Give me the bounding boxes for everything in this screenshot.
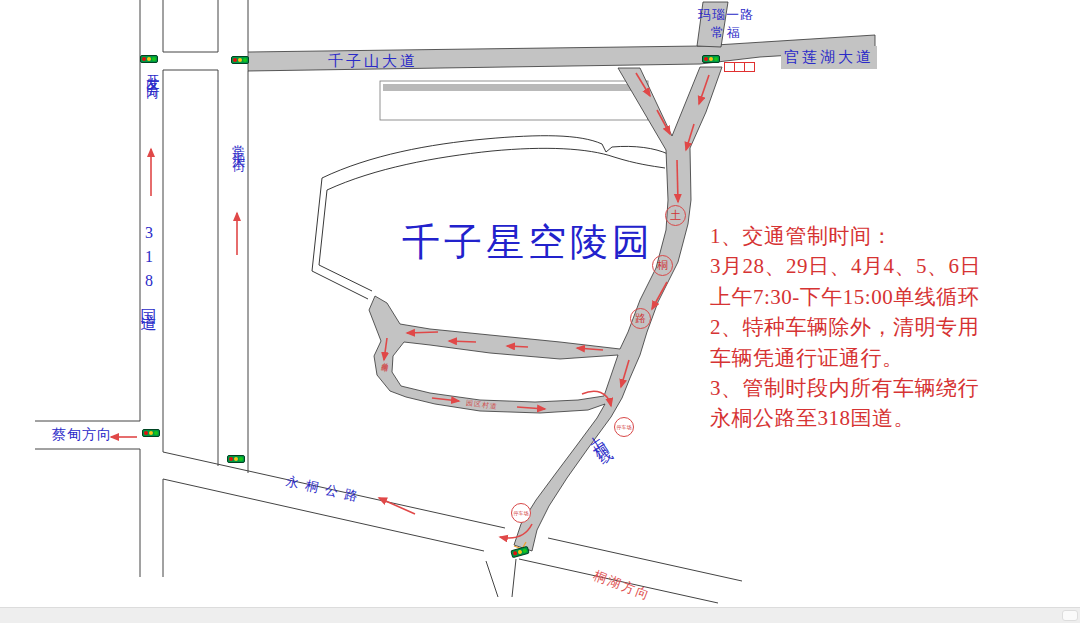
cemetery-title: 千子星空陵园	[402, 222, 654, 264]
parking-strip	[380, 81, 648, 120]
notice-line: 永桐公路至318国道。	[710, 403, 981, 433]
traffic-light-icon	[142, 429, 160, 437]
road-label-caidian: 蔡甸方向	[52, 427, 112, 442]
traffic-notice: 1、交通管制时间： 3月28、29日、4月4、5、6日 上午7:30-下午15:…	[710, 221, 981, 434]
road-label-guanlianhu: 官莲湖大道	[784, 49, 874, 66]
road-label-qianzishan: 千子山大道	[328, 53, 418, 70]
road-label-changfu-street: 常福大街	[231, 134, 245, 154]
notice-line: 3月28、29日、4月4、5、6日	[710, 251, 981, 281]
traffic-light-icon	[231, 56, 249, 64]
road-label-manao: 玛瑙一路	[698, 8, 754, 22]
road-label-changfu: 常福	[711, 26, 743, 40]
bottom-bar	[0, 607, 1080, 623]
traffic-light-icon	[702, 55, 720, 63]
traffic-light-icon	[227, 455, 245, 463]
scrollbar-corner	[1062, 610, 1078, 621]
notice-line: 上午7:30-下午15:00单线循环	[710, 282, 981, 312]
road-marker-tong: 桐	[652, 255, 673, 276]
traffic-control-map: 千子山大道 官莲湖大道 玛瑙一路 常福 开发区方向 318国道 常福大街 蔡甸方…	[0, 0, 1080, 623]
traffic-light-icon	[140, 55, 158, 63]
notice-line: 车辆凭通行证通行。	[710, 343, 981, 373]
notice-line: 1、交通管制时间：	[710, 221, 981, 251]
notice-line: 2、特种车辆除外，清明专用	[710, 312, 981, 342]
bus-stop-box	[724, 62, 755, 72]
notice-line: 3、管制时段内所有车辆绕行	[710, 373, 981, 403]
road-marker-tu: 土	[665, 205, 686, 226]
checkpoint-circle: 停车场	[614, 417, 634, 437]
road-marker-lu: 路	[630, 308, 651, 329]
cemetery-boundary	[312, 136, 668, 299]
road-label-kaifaqu: 开发区方向	[145, 64, 159, 79]
road-label-guanlianhu-box: 官莲湖大道	[781, 46, 877, 69]
road-label-g318: 318国道	[140, 224, 158, 310]
checkpoint-circle: 停车场	[511, 503, 531, 523]
direction-arrows	[111, 73, 709, 538]
road-tutong-network	[369, 67, 722, 551]
